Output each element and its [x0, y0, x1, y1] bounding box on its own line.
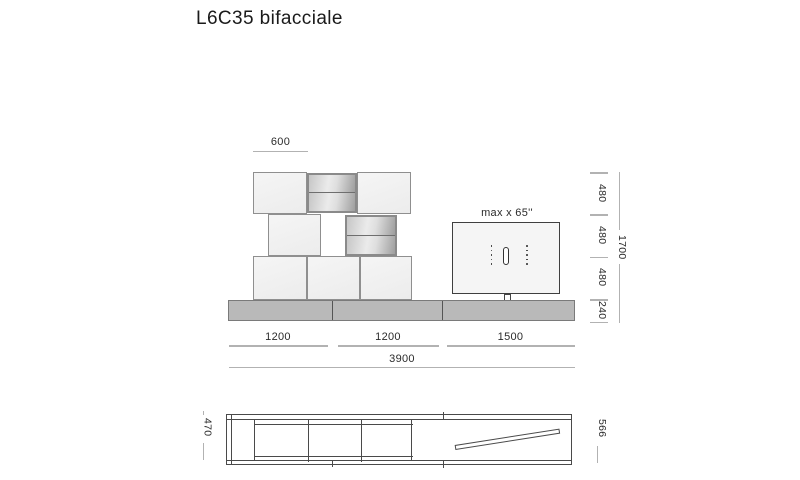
plan-inner-line-top — [255, 424, 413, 425]
plan-cabinet-divider — [361, 420, 362, 462]
dim-line-566-lower — [597, 446, 599, 464]
drawing-sheet: L6C35 bifacciale max x 65'' — [0, 0, 800, 480]
plan-inner-line-bottom — [255, 456, 413, 457]
plan-cabinet-divider — [308, 420, 309, 462]
dim-line-470-lower — [203, 443, 205, 461]
dim-label-566: 566 — [595, 415, 609, 441]
plan-cabinet-group — [254, 419, 412, 461]
plan-left-panel-line — [231, 414, 232, 465]
dim-label-470: 470 — [201, 415, 215, 440]
plan-joint-tick — [443, 461, 444, 468]
plan-joint-tick — [332, 461, 333, 467]
plan-joint-tick — [443, 412, 444, 419]
plan-view — [0, 0, 800, 480]
